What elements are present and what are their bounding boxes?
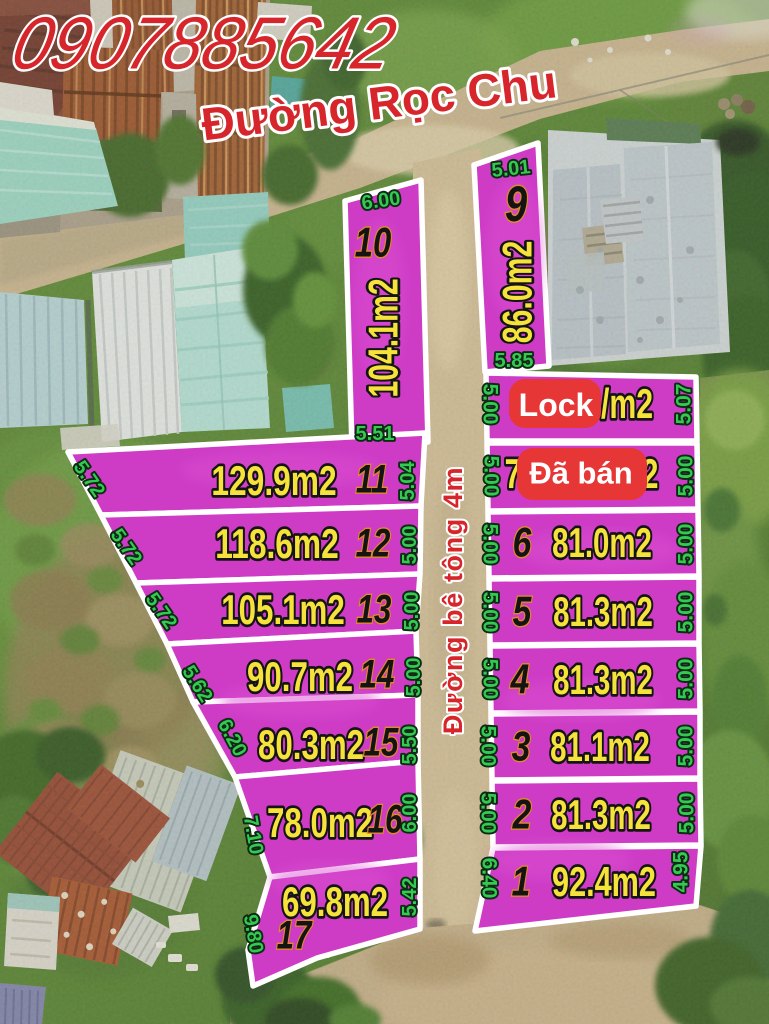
svg-text:92.4m2: 92.4m2 bbox=[552, 858, 656, 905]
svg-text:5.00: 5.00 bbox=[479, 659, 502, 700]
svg-text:Đã bán: Đã bán bbox=[529, 456, 632, 491]
svg-text:5.00: 5.00 bbox=[479, 384, 502, 425]
svg-text:0907885642: 0907885642 bbox=[5, 3, 404, 85]
svg-text:15: 15 bbox=[364, 720, 400, 765]
svg-text:3: 3 bbox=[512, 724, 531, 770]
svg-text:81.3m2: 81.3m2 bbox=[551, 791, 651, 839]
svg-text:5: 5 bbox=[513, 589, 532, 635]
svg-text:78.0m2: 78.0m2 bbox=[267, 798, 373, 846]
svg-text:6.00: 6.00 bbox=[399, 794, 421, 833]
svg-text:5.85: 5.85 bbox=[495, 350, 534, 372]
svg-text:129.9m2: 129.9m2 bbox=[211, 457, 336, 504]
svg-text:5.00: 5.00 bbox=[479, 592, 502, 633]
svg-text:5.00: 5.00 bbox=[480, 456, 503, 497]
svg-text:5.00: 5.00 bbox=[399, 526, 421, 565]
svg-text:5.00: 5.00 bbox=[676, 793, 699, 834]
svg-text:5.00: 5.00 bbox=[675, 524, 698, 565]
svg-text:81.3m2: 81.3m2 bbox=[553, 656, 653, 704]
svg-text:5.50: 5.50 bbox=[399, 726, 421, 765]
svg-text:81.0m2: 81.0m2 bbox=[552, 519, 652, 567]
svg-text:104.1m2: 104.1m2 bbox=[359, 278, 406, 397]
svg-text:11: 11 bbox=[356, 457, 388, 502]
svg-text:4.95: 4.95 bbox=[670, 851, 693, 892]
svg-text:Đường bê tông 4m: Đường bê tông 4m bbox=[438, 466, 468, 734]
svg-text:5.00: 5.00 bbox=[675, 456, 698, 497]
svg-text:5.00: 5.00 bbox=[675, 726, 698, 767]
svg-text:5.00: 5.00 bbox=[403, 658, 425, 697]
svg-text:5.00: 5.00 bbox=[675, 592, 698, 633]
svg-text:5.00: 5.00 bbox=[479, 524, 502, 565]
svg-text:Lock: Lock bbox=[519, 387, 594, 423]
svg-text:118.6m2: 118.6m2 bbox=[215, 520, 338, 567]
svg-text:6.40: 6.40 bbox=[478, 858, 501, 899]
svg-text:2: 2 bbox=[512, 792, 532, 838]
svg-text:5.00: 5.00 bbox=[675, 659, 698, 700]
svg-text:5.00: 5.00 bbox=[401, 592, 423, 631]
svg-text:6: 6 bbox=[513, 520, 532, 566]
svg-text:90.7m2: 90.7m2 bbox=[247, 652, 353, 700]
svg-text:1: 1 bbox=[512, 859, 531, 905]
svg-text:5.42: 5.42 bbox=[399, 878, 421, 917]
svg-text:9: 9 bbox=[505, 176, 527, 232]
svg-text:105.1m2: 105.1m2 bbox=[221, 585, 344, 633]
svg-text:81.1m2: 81.1m2 bbox=[550, 723, 650, 771]
svg-text:12: 12 bbox=[356, 521, 391, 566]
svg-text:13: 13 bbox=[357, 587, 392, 632]
svg-text:5.51: 5.51 bbox=[356, 423, 395, 445]
svg-text:4: 4 bbox=[510, 657, 530, 703]
svg-text:86.0m2: 86.0m2 bbox=[493, 241, 540, 344]
svg-text:5.04: 5.04 bbox=[397, 461, 419, 501]
svg-text:5.00: 5.00 bbox=[477, 726, 500, 767]
svg-text:5.07: 5.07 bbox=[673, 384, 696, 425]
svg-text:80.3m2: 80.3m2 bbox=[258, 720, 364, 768]
svg-text:81.3m2: 81.3m2 bbox=[553, 588, 653, 636]
svg-text:10: 10 bbox=[355, 219, 391, 266]
svg-text:14: 14 bbox=[360, 652, 395, 697]
svg-text:17: 17 bbox=[277, 913, 313, 958]
svg-text:/m2: /m2 bbox=[601, 380, 653, 427]
svg-text:16: 16 bbox=[368, 797, 404, 842]
svg-text:5.00: 5.00 bbox=[477, 793, 500, 834]
